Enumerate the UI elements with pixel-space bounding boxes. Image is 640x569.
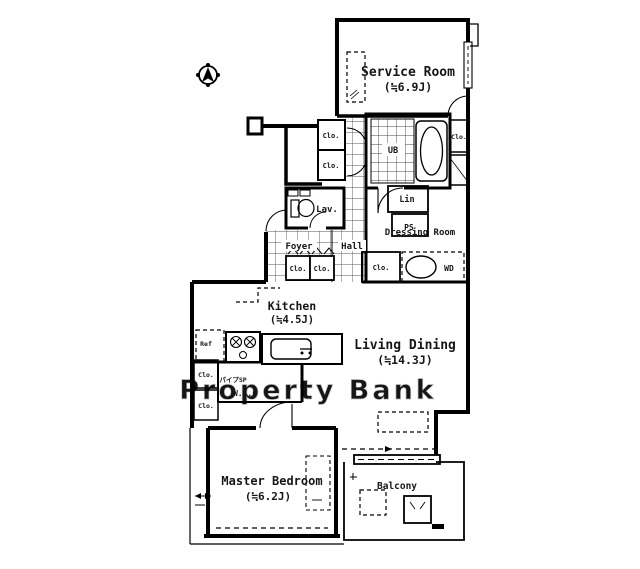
closet-label: Clo. <box>198 402 214 410</box>
faucet-knob <box>301 352 304 355</box>
hall-label: Hall <box>341 242 363 252</box>
lin-label: Lin <box>399 194 414 205</box>
closet-label: Clo. <box>198 371 214 379</box>
stove-icon <box>226 332 260 362</box>
living-dining-size: (≒14.3J) <box>377 353 432 367</box>
bath-door-gap <box>378 184 404 191</box>
wd-label: WD <box>444 264 454 273</box>
balcony-window <box>354 455 440 464</box>
ps-label: PS <box>404 223 414 232</box>
closet-label: Clo. <box>451 133 467 141</box>
compass-tick <box>216 73 220 77</box>
drain-mark <box>432 524 444 529</box>
closet-label: Clo. <box>314 265 331 273</box>
pipe-space-label: パイプSP <box>219 375 246 384</box>
compass-tick <box>206 83 210 87</box>
kitchen-size: (≒4.5J) <box>270 314 314 326</box>
ref-label: Ref <box>200 340 212 348</box>
wic-label: W.I.C <box>233 389 257 398</box>
closet-label: Clo. <box>290 265 307 273</box>
dressing-room-label: Dressing Room <box>385 227 456 238</box>
compass-tick <box>206 63 210 67</box>
closet-label: Clo. <box>323 162 340 170</box>
lav-door-gap <box>308 225 326 231</box>
master-bedroom-size: (≒6.2J) <box>245 490 291 503</box>
closet-label: Clo. <box>323 132 340 140</box>
hall-upper-tile <box>344 188 366 230</box>
lav-label: Lav. <box>316 205 338 215</box>
ub-label: UB <box>388 146 398 156</box>
compass-tick <box>196 73 200 77</box>
hall-lower-tile <box>332 258 366 282</box>
faucet-knob <box>309 352 312 355</box>
foyer-label: Foyer <box>285 242 313 252</box>
kitchen-label: Kitchen <box>268 299 317 313</box>
balcony-label: Balcony <box>377 481 417 492</box>
closet-label: Clo. <box>373 264 390 272</box>
service-room-size: (≒6.9J) <box>384 80 432 94</box>
floor-plan: Property Bank <box>0 0 640 569</box>
master-bedroom-label: Master Bedroom <box>221 474 322 488</box>
living-dining-label: Living Dining <box>354 338 456 353</box>
foyer-step-tile <box>266 258 286 282</box>
corridor-tile <box>346 116 366 188</box>
service-room-label: Service Room <box>361 65 455 80</box>
floor-plan-svg: Property Bank <box>0 0 640 569</box>
